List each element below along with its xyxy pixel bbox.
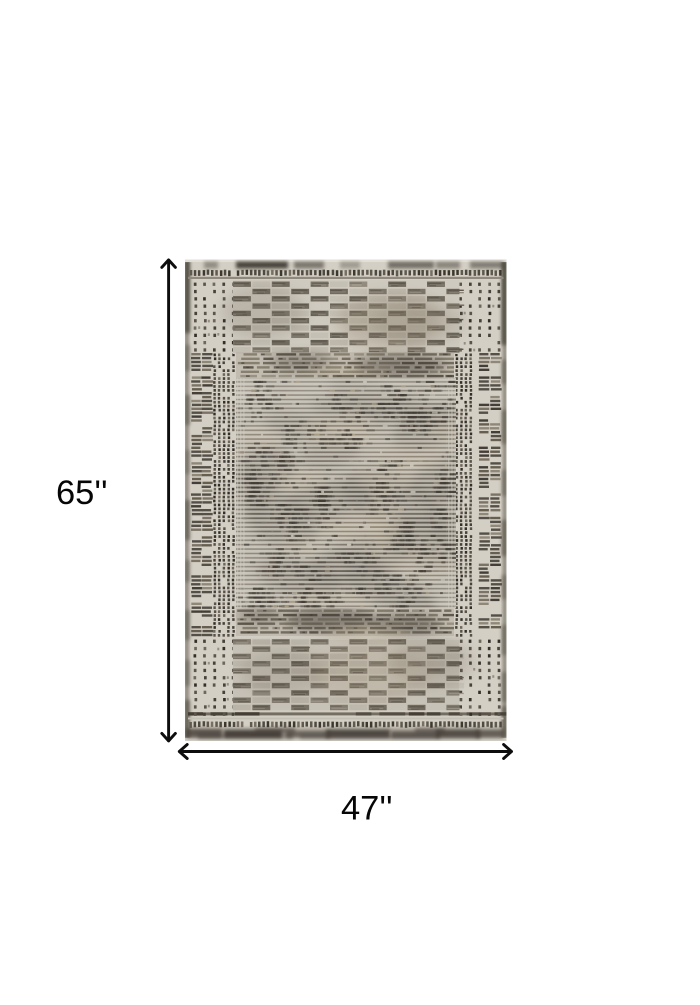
svg-text:65'': 65'' [56, 474, 108, 512]
svg-text:47'': 47'' [341, 790, 393, 828]
